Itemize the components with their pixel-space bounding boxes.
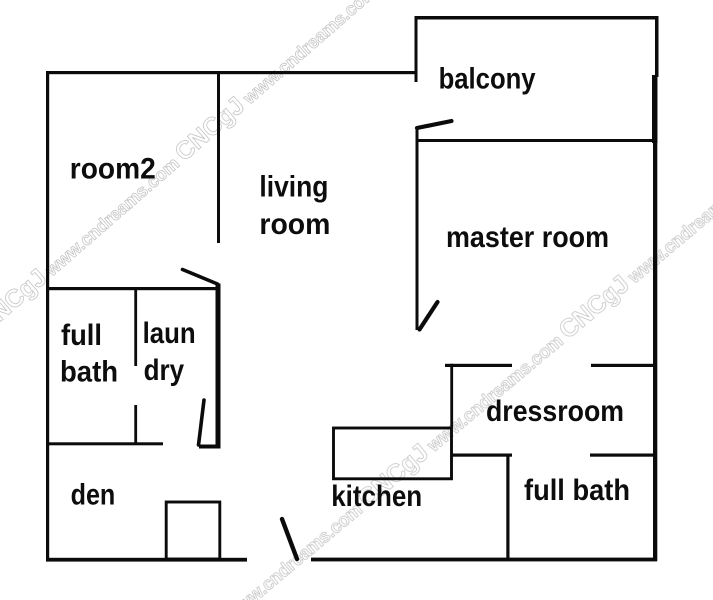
svg-text:master room: master room <box>446 221 609 254</box>
svg-text:full bath: full bath <box>524 474 630 507</box>
svg-text:room2: room2 <box>70 153 156 186</box>
svg-text:full: full <box>61 319 102 352</box>
svg-text:living: living <box>259 171 328 204</box>
svg-text:dressroom: dressroom <box>486 395 624 428</box>
svg-text:kitchen: kitchen <box>331 480 422 513</box>
svg-text:den: den <box>71 479 116 512</box>
svg-text:laun: laun <box>143 317 196 350</box>
svg-text:balcony: balcony <box>439 63 536 96</box>
svg-text:dry: dry <box>144 354 185 387</box>
svg-text:bath: bath <box>60 355 118 388</box>
svg-text:room: room <box>259 208 330 241</box>
